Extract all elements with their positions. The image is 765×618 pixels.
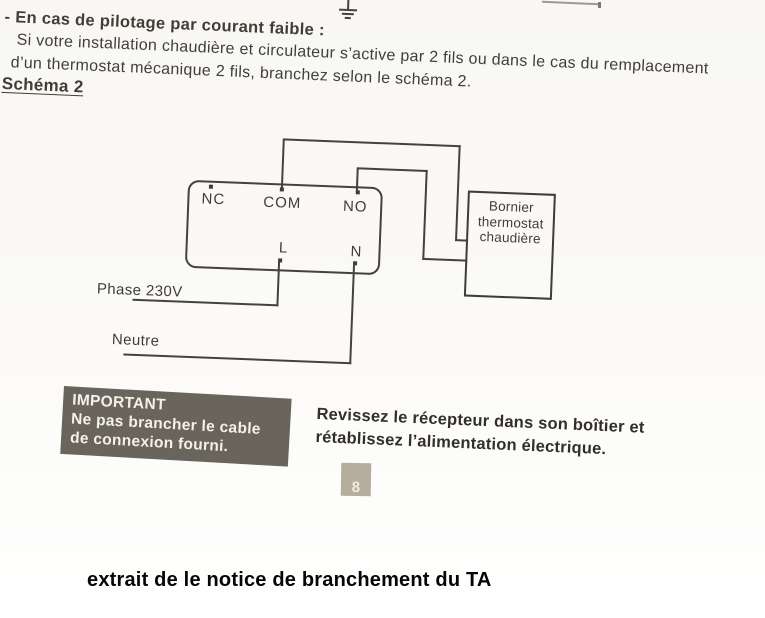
wiring-diagram: NC COM NO L N Phase 230V Neutre Bornier …	[81, 130, 575, 388]
earth-ground-icon	[338, 0, 359, 22]
page-number: 8	[352, 479, 361, 496]
caption-text: extrait de le notice de branchement du T…	[87, 569, 492, 592]
wire-com-vertical	[281, 139, 285, 189]
scanned-notice-page: - En cas de pilotage par courant faible …	[0, 0, 765, 618]
page-number-badge: 8	[341, 463, 372, 497]
wire-no-horizontal	[357, 167, 428, 172]
terminal-no	[356, 190, 360, 194]
terminal-label-n: N	[350, 243, 362, 260]
terminal-label-nc: NC	[201, 190, 225, 208]
bornier-thermostat-box: Bornier thermostat chaudière	[464, 191, 556, 300]
wire-com-right-vertical	[455, 145, 461, 241]
terminal-label-no: NO	[343, 198, 368, 216]
bornier-label-line3: chaudière	[468, 229, 553, 248]
wire-no-bornier-entry	[422, 258, 467, 262]
bornier-box-label: Bornier thermostat chaudière	[468, 198, 554, 248]
instruction-text: Revissez le récepteur dans son boîtier e…	[315, 403, 677, 464]
wire-neutre-horizontal	[123, 353, 351, 364]
important-warning-box: IMPORTANT Ne pas brancher le cable de co…	[60, 386, 291, 467]
terminal-nc	[209, 185, 213, 189]
terminal-label-l: L	[279, 239, 289, 256]
wire-phase-horizontal	[132, 299, 278, 307]
terminal-label-com: COM	[263, 194, 302, 212]
schema-2-heading: Schéma 2	[1, 74, 84, 97]
terminal-com	[280, 187, 284, 191]
neutre-label: Neutre	[112, 331, 160, 350]
scan-edge-corner	[598, 2, 601, 8]
scan-edge-line	[542, 1, 599, 5]
scan-edge-artifact	[540, 0, 605, 14]
wire-com-top-horizontal	[283, 138, 461, 147]
wire-n-vertical	[349, 263, 355, 364]
phase-label: Phase 230V	[97, 280, 183, 300]
header-block: - En cas de pilotage par courant faible …	[0, 8, 765, 150]
wire-no-mid-vertical	[422, 170, 427, 260]
wire-l-vertical	[276, 260, 280, 306]
